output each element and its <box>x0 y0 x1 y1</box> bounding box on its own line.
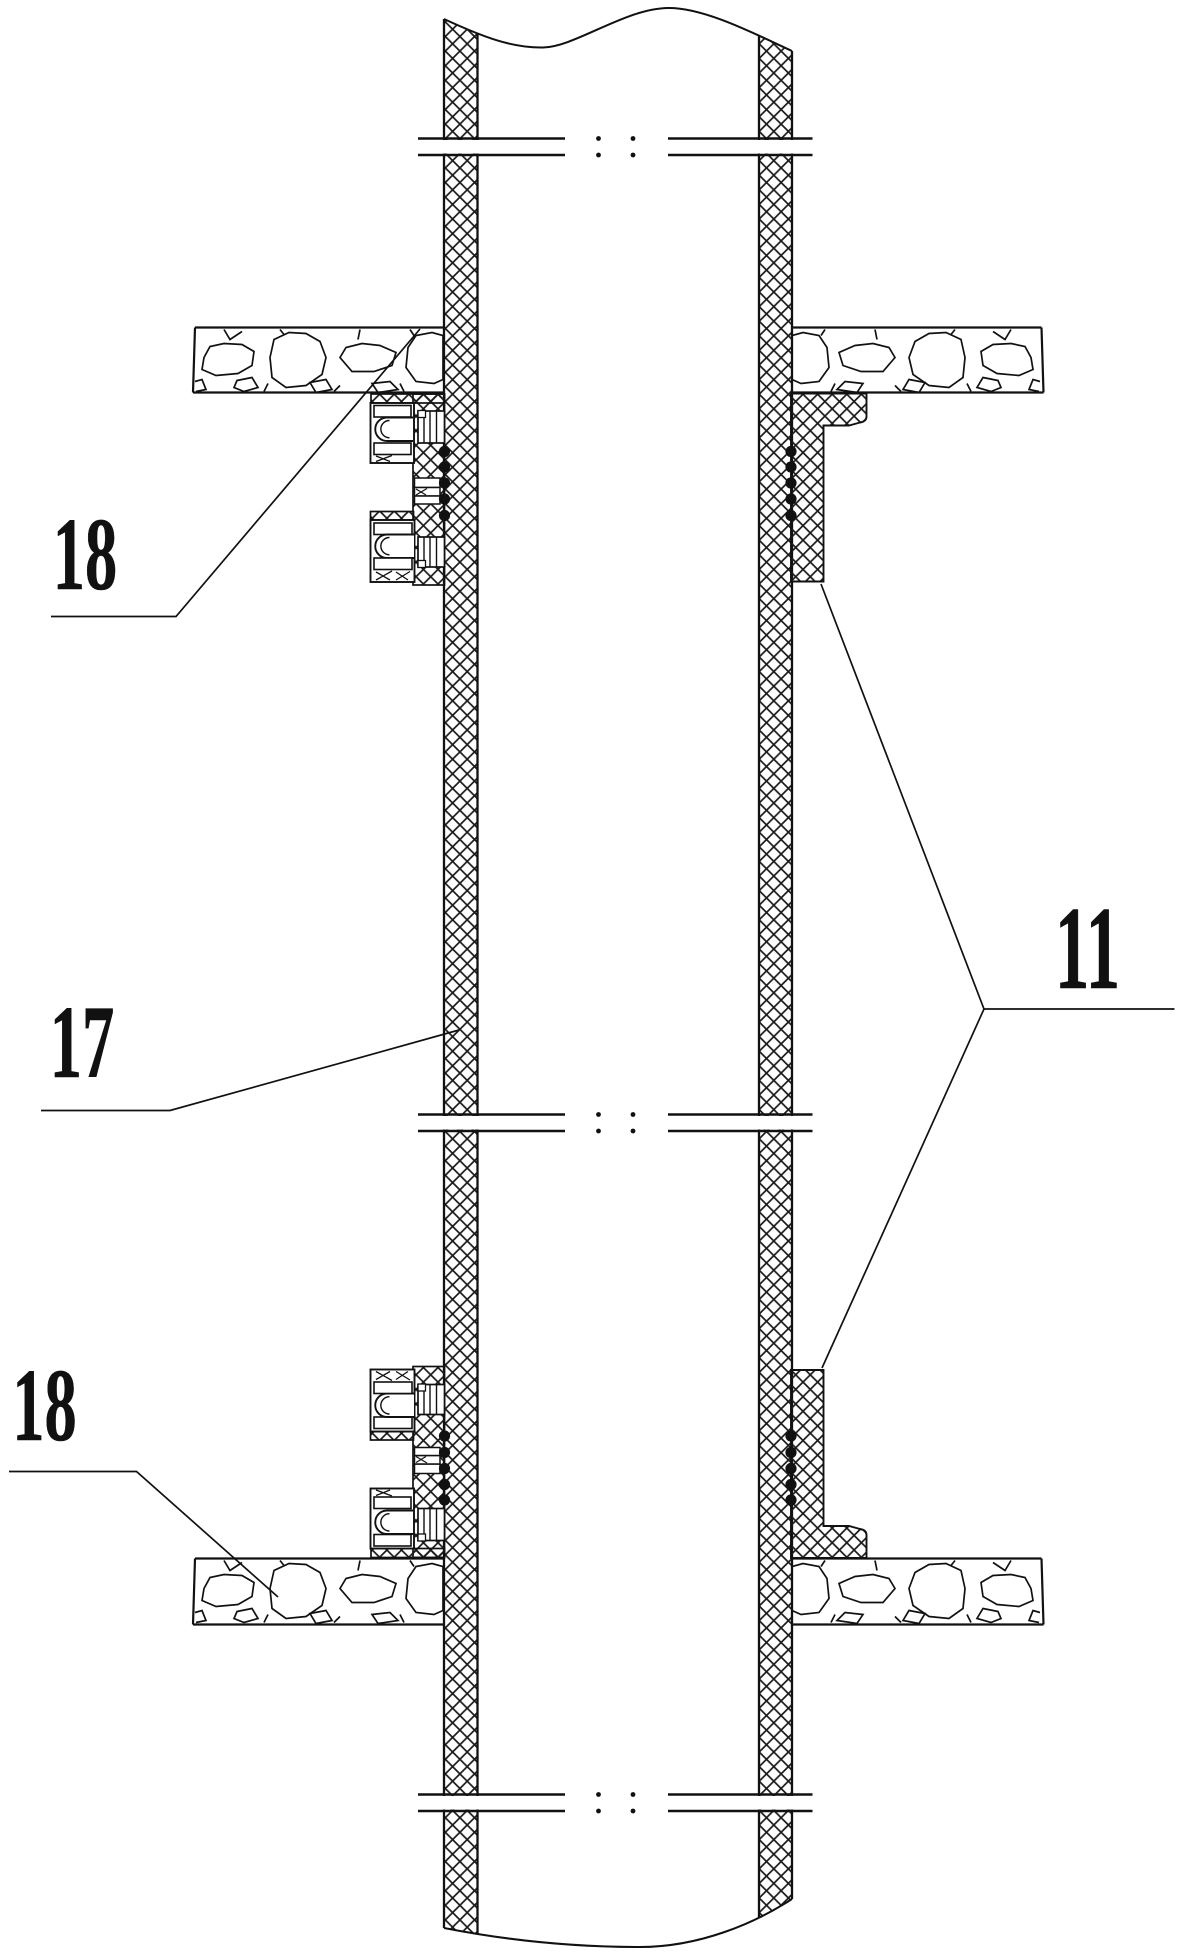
svg-text:18: 18 <box>12 1347 76 1462</box>
svg-text:11: 11 <box>1055 883 1120 1015</box>
svg-text:18: 18 <box>53 496 117 611</box>
svg-text:17: 17 <box>50 984 114 1099</box>
